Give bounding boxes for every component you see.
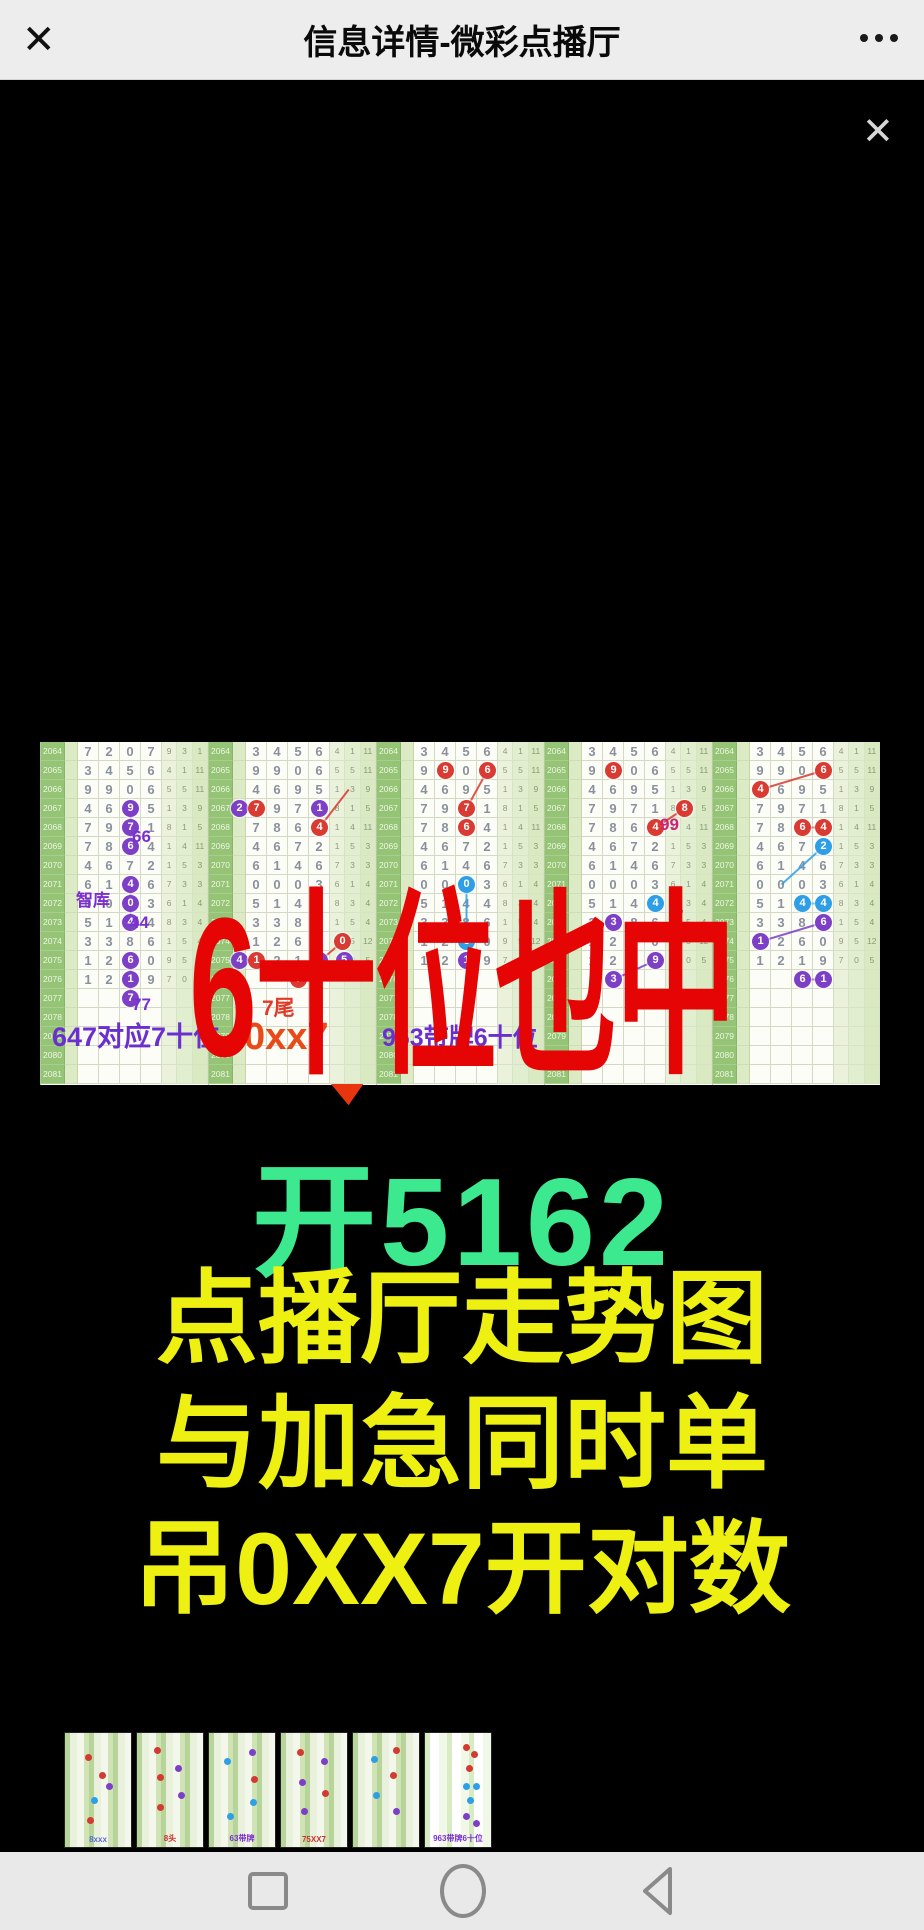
recents-icon[interactable] [248,1872,288,1910]
chart-thumbnail[interactable]: 63带牌 [208,1732,276,1848]
circled-digit: 9 [122,800,139,817]
circled-digit: 9 [437,762,454,779]
thumbnail-label: 963带牌6十位 [425,1833,491,1844]
chart-row: 206599065511 [209,761,376,780]
promo-line-2: 与加急同时单 [0,1382,924,1507]
circled-digit: 9 [605,762,622,779]
chart-row: 20664695139 [377,780,544,799]
chart-thumbnail[interactable]: 963带牌6十位 [424,1732,492,1848]
chart-row: 206699065511 [41,780,208,799]
back-icon[interactable] [634,1864,680,1918]
thumbnail-label: 63带牌 [209,1833,275,1844]
headline-overlay: 6十位也中 [0,827,924,1114]
thumbnail-label: 75XX7 [281,1835,347,1844]
circled-digit: 6 [815,762,832,779]
circled-digit: 7 [458,800,475,817]
chart-row: 206434564111 [377,742,544,761]
chart-row: 20664695139 [209,780,376,799]
promo-text: 点播厅走势图 与加急同时单 吊0XX7开对数 [0,1257,924,1632]
chart-row: 20647207931 [41,742,208,761]
android-navbar [0,1852,924,1930]
chart-thumbnail[interactable]: 8xxx [64,1732,132,1848]
chart-thumbnail[interactable]: 8头 [136,1732,204,1848]
chart-row: 20664695139 [545,780,712,799]
chart-row: 206434564111 [713,742,880,761]
chart-row: 206599065511 [545,761,712,780]
chart-row: 20677971815 [713,799,880,818]
chart-thumbnail[interactable] [352,1732,420,1848]
circled-digit: 6 [479,762,496,779]
thumbnail-strip: 8xxx8头63带牌75XX7963带牌6十位 [64,1732,492,1848]
chart-row: 20664695139 [713,780,880,799]
viewer-close-icon[interactable]: ✕ [862,109,894,154]
circled-digit: 7 [248,800,265,817]
thumbnail-label: 8头 [137,1833,203,1844]
circled-digit: 2 [231,800,248,817]
promo-line-1: 点播厅走势图 [0,1257,924,1382]
chart-thumbnail[interactable]: 75XX7 [280,1732,348,1848]
more-menu-icon[interactable] [860,34,898,42]
circled-digit: 1 [311,800,328,817]
home-icon[interactable] [440,1864,486,1918]
chart-row: 206599065511 [713,761,880,780]
titlebar: ✕ 信息详情-微彩点播厅 [0,0,924,80]
phone-screen: ✕ 信息详情-微彩点播厅 ✕ 2064720793120653456411120… [0,0,924,1930]
chart-row: 206534564111 [41,761,208,780]
circled-digit: 4 [752,781,769,798]
chart-row: 206599065511 [377,761,544,780]
promo-line-3: 吊0XX7开对数 [0,1507,924,1632]
chart-row: 206434564111 [209,742,376,761]
image-viewer[interactable]: ✕ 20647207931206534564111206699065511206… [0,81,924,1852]
thumbnail-label: 8xxx [65,1835,131,1844]
page-title: 信息详情-微彩点播厅 [0,15,924,64]
chart-row: 206434564111 [545,742,712,761]
